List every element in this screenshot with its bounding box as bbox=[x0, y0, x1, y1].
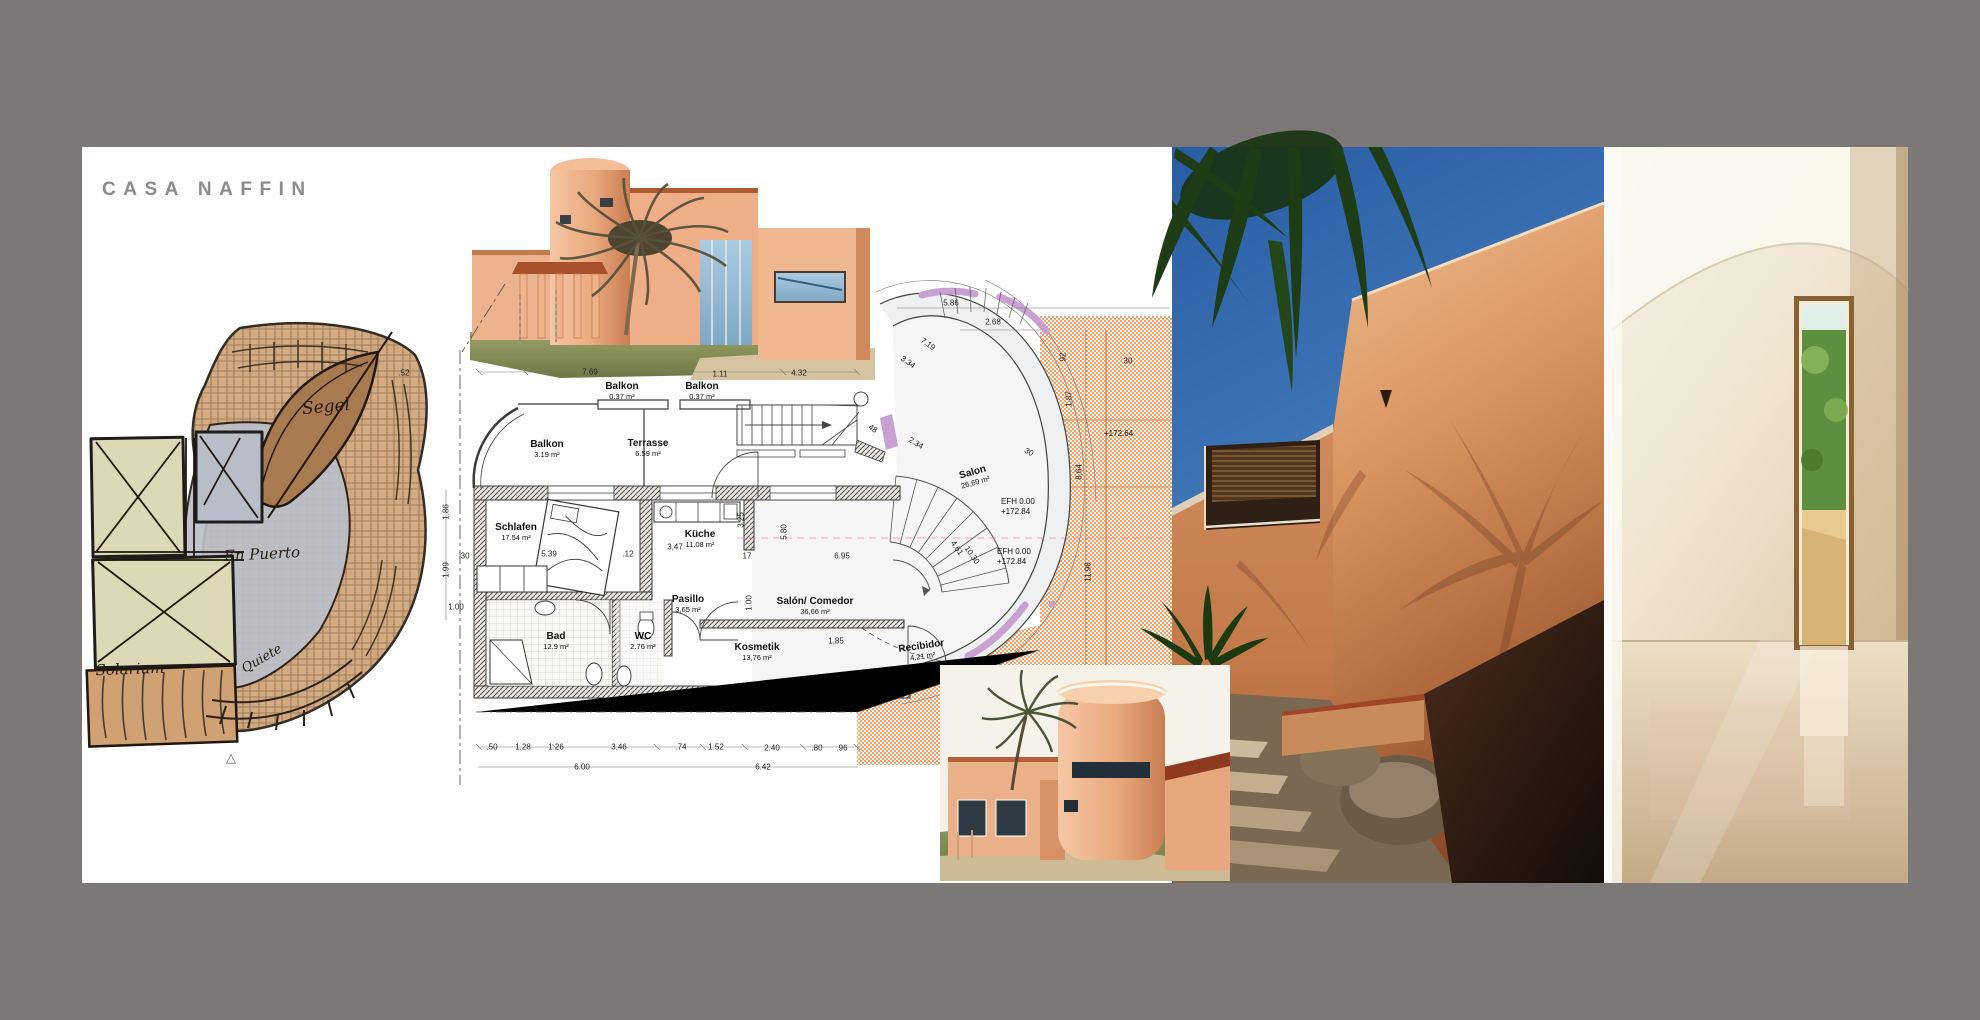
door-reflection bbox=[1800, 646, 1848, 736]
render-perspective-top bbox=[470, 158, 875, 380]
garden-doorway bbox=[1794, 296, 1854, 650]
render-strip-window bbox=[775, 272, 845, 302]
balcony-rails bbox=[474, 400, 750, 488]
portfolio-page: CASA NAFFIN Segel En Puerto Solarium Qui… bbox=[0, 0, 1980, 1020]
artwork-canvas bbox=[0, 0, 1980, 1020]
hand-sketch bbox=[87, 323, 427, 746]
render-perspective-bottom bbox=[940, 665, 1230, 881]
render-pergola-roof bbox=[512, 262, 608, 274]
photo-interior bbox=[1612, 147, 1908, 883]
straight-stair bbox=[737, 392, 868, 457]
photo-divider bbox=[1604, 147, 1612, 883]
louvre-window bbox=[1205, 440, 1320, 530]
